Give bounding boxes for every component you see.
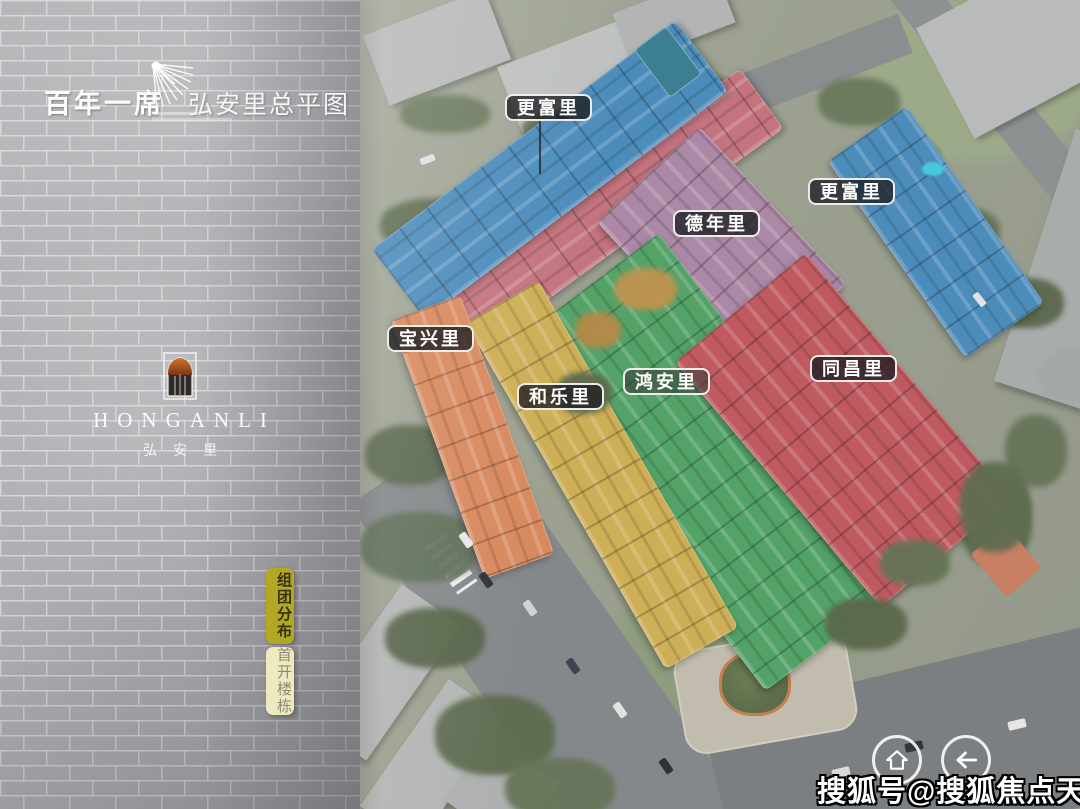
autumn-trees <box>575 312 621 348</box>
trees <box>360 512 480 582</box>
offsite-building <box>363 0 511 106</box>
trees <box>880 540 950 586</box>
tab-group-distribution[interactable]: 组团分布 <box>266 568 294 644</box>
tab-first-launch-buildings[interactable]: 首开楼栋 <box>266 647 294 715</box>
masterplan-map: 更富里 更富里 德年里 宝兴里 和乐里 鸿安里 同昌里 <box>360 0 1080 809</box>
district-label-denianli: 德年里 <box>673 210 760 237</box>
brand-name-cn: 弘安里 <box>0 440 360 460</box>
district-label-heleli: 和乐里 <box>517 383 604 410</box>
screenshot-stage: 更富里 更富里 德年里 宝兴里 和乐里 鸿安里 同昌里 百年一席 <box>0 0 1080 809</box>
trees <box>960 462 1030 552</box>
car <box>419 154 436 166</box>
district-label-tongchangli: 同昌里 <box>810 355 897 382</box>
district-label-honganli: 鸿安里 <box>623 368 710 395</box>
label-leader-line <box>539 120 541 174</box>
district-label-gengfuli-north: 更富里 <box>505 94 592 121</box>
brand-logo: HONGANLI 弘安里 <box>0 352 360 460</box>
brand-name-en: HONGANLI <box>0 408 360 433</box>
trees <box>385 608 485 668</box>
sidebar: 百年一席 弘安里总平图 <box>0 0 360 809</box>
watermark-text: 搜狐号@搜狐焦点天门站 <box>817 768 1080 809</box>
district-label-baoxingli: 宝兴里 <box>387 325 474 352</box>
slogan-text: 百年一席 <box>44 82 164 121</box>
trees <box>825 598 907 650</box>
trees <box>400 95 490 133</box>
autumn-trees <box>615 268 677 310</box>
pool <box>922 162 944 176</box>
arch-door-icon <box>163 352 197 400</box>
district-label-gengfuli-east: 更富里 <box>808 178 895 205</box>
trees <box>505 758 615 809</box>
logo-tagline-placeholder <box>152 112 232 121</box>
